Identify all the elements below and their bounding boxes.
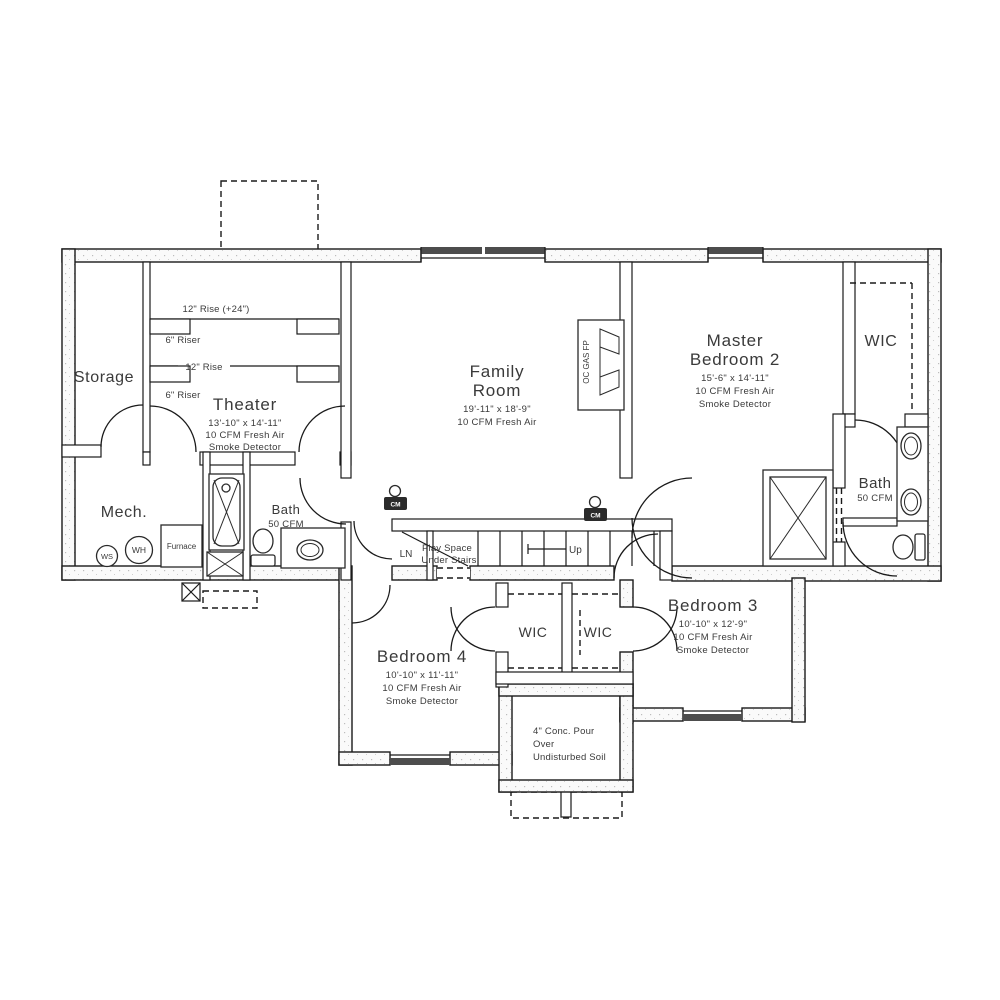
note-concrete-2: Over [533,739,554,750]
footing-dashed-left [182,583,257,608]
furnace-label: Furnace [167,542,197,551]
floor-plan-canvas: CM CM Storage 12" Rise (+24") 6" Riser 1… [0,0,1000,1000]
bedroom4-door-arc [352,585,390,623]
room-label-wic-b3: WIC [584,624,613,640]
room-label-family-2: Room [473,381,522,400]
dims-theater: 13'-10" x 14'-11" [208,418,281,429]
linen-door-arc [354,521,392,559]
main-bath-door-arc [300,478,346,524]
riser-note-back: 12" Rise (+24") [182,304,249,315]
theater-door-left-arc [150,406,196,452]
wic-b4-door-arc [451,607,495,651]
room-label-mech: Mech. [101,504,148,521]
bathtub-fixture [209,474,244,550]
cm-label: CM [590,513,600,520]
theater-door-right-arc [299,406,345,452]
note-master-air: 10 CFM Fresh Air [695,386,774,397]
note-theater-smoke: Smoke Detector [209,442,281,453]
water-heater-label: WH [132,545,146,555]
room-label-storage: Storage [74,369,134,386]
note-play-space-1: Play Space [422,543,472,554]
room-label-master-2: Bedroom 2 [690,350,780,369]
dims-family: 19'-11" x 18'-9" [463,404,531,415]
note-theater-air: 10 CFM Fresh Air [205,430,284,441]
room-label-master-wic: WIC [865,333,898,350]
note-master-bath-fan: 50 CFM [857,493,893,504]
up-arrow [528,544,566,554]
room-label-theater: Theater [213,395,277,414]
riser-note-front: 12" Rise [185,362,222,373]
wic-b4-door-arc [451,607,495,651]
room-label-family-1: Family [470,362,525,381]
window-bedroom3 [683,711,742,721]
sink-vanity-main-bath [281,528,345,568]
riser-note: 6" Riser [165,390,200,401]
note-concrete-3: Undisturbed Soil [533,752,606,763]
cm-detector: CM [584,497,607,522]
window-bedroom4 [390,755,450,765]
note-main-bath-fan: 50 CFM [268,519,304,530]
room-label-main-bath: Bath [272,502,301,517]
cm-label: CM [390,502,400,509]
toilet-icon-main-bath [251,529,275,566]
window-family-room [421,247,545,262]
dims-master: 15'-6" x 14'-11" [701,373,769,384]
theater-risers [150,319,339,382]
room-label-master-1: Master [707,331,764,350]
support-column [561,790,571,817]
up-label: Up [569,545,582,556]
note-bedroom4-smoke: Smoke Detector [386,696,458,707]
chase-x-box [207,552,243,576]
shower-icon [763,470,833,566]
riser-note: 6" Riser [165,335,200,346]
footing-dashed-bottom [511,790,622,818]
dims-bedroom3: 10'-10" x 12'-9" [679,619,748,630]
note-bedroom3-air: 10 CFM Fresh Air [673,632,752,643]
crawl-access-dashed [437,567,470,579]
room-label-bedroom4: Bedroom 4 [377,647,467,666]
toilet-icon-master-bath [893,534,925,560]
fireplace-label: OC GAS FP [582,340,591,384]
dims-bedroom4: 10'-10" x 11'-11" [386,670,459,681]
cm-detector: CM [384,486,407,511]
room-label-bedroom3: Bedroom 3 [668,596,758,615]
sink-vanity-master-bath [897,427,928,521]
note-concrete-1: 4" Conc. Pour [533,726,594,737]
water-softener-label: WS [101,552,113,561]
note-play-space-2: Under Stairs [421,555,476,566]
room-label-master-bath: Bath [859,475,892,492]
room-label-linen: LN [400,549,413,560]
room-label-wic-b4: WIC [519,624,548,640]
porch-outline-dashed [221,181,318,252]
note-bedroom3-smoke: Smoke Detector [677,645,749,656]
storage-door-arc [101,405,143,447]
window-master-bedroom [708,247,763,262]
note-master-smoke: Smoke Detector [699,399,771,410]
floor-plan-drawing: CM CM Storage 12" Rise (+24") 6" Riser 1… [0,0,1000,1000]
note-family-air: 10 CFM Fresh Air [457,417,536,428]
note-bedroom4-air: 10 CFM Fresh Air [382,683,461,694]
